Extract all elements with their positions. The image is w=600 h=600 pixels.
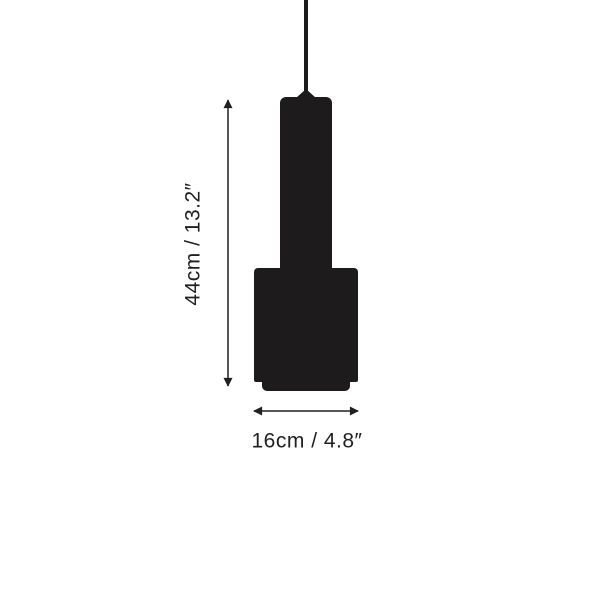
lamp-base-step: [262, 380, 350, 391]
lamp-cord: [304, 0, 308, 98]
lamp-shade: [254, 268, 358, 382]
lamp-neck-cylinder: [280, 97, 332, 271]
product-dimension-diagram: 44cm / 13.2″ 16cm / 4.8″: [0, 0, 600, 600]
height-dimension-label: 44cm / 13.2″: [183, 182, 204, 305]
width-dimension-label: 16cm / 4.8″: [252, 431, 363, 452]
